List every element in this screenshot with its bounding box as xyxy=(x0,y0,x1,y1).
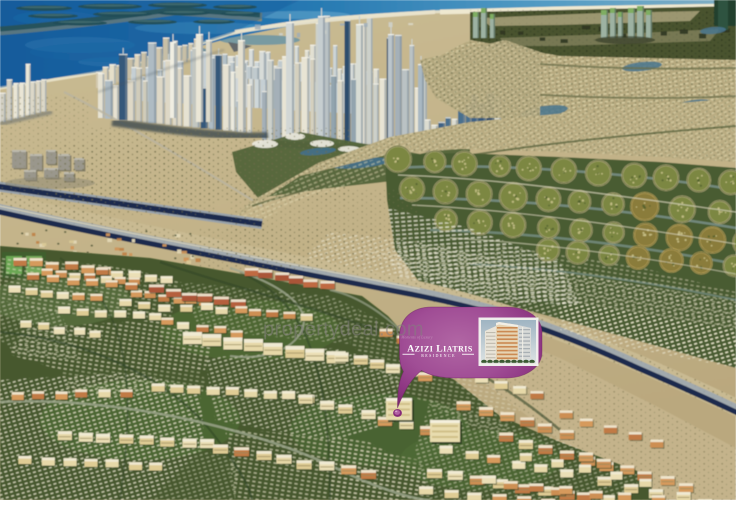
svg-text:RESIDENCE: RESIDENCE xyxy=(421,353,456,358)
svg-text:propertydeal.com: propertydeal.com xyxy=(263,319,424,341)
